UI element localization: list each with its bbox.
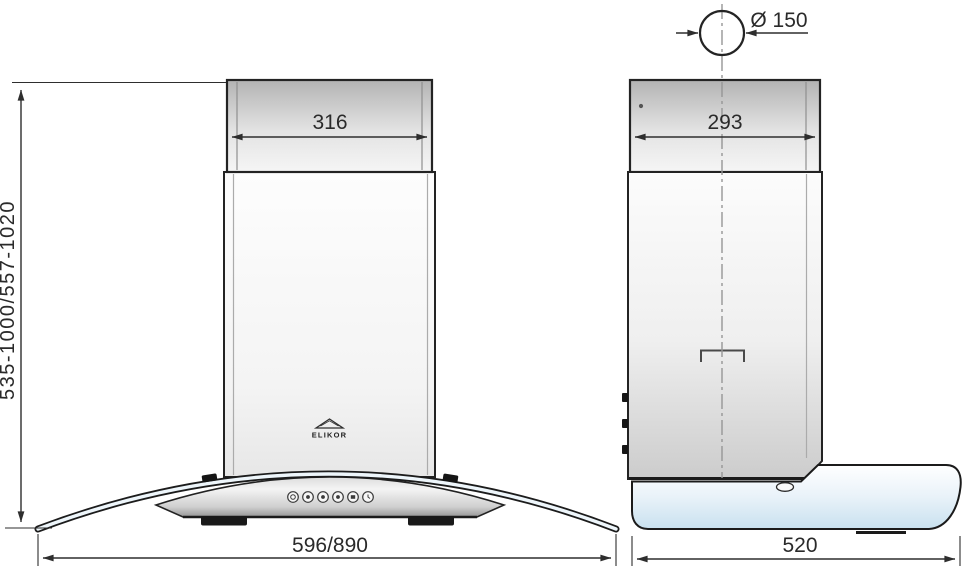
- rear-tab-2: [622, 419, 628, 428]
- front-view: ELIKOR: [0, 80, 616, 566]
- dimension-body-width: 596/890: [38, 534, 616, 566]
- dimension-value-316: 316: [312, 111, 347, 134]
- dimension-value-height: 535-1000/557-1020: [0, 200, 19, 400]
- dimension-duct-diameter: Ø 150: [676, 9, 808, 33]
- dimension-value-520: 520: [782, 534, 817, 557]
- side-view: Ø 150 293 520: [622, 4, 961, 566]
- vent-oval: [777, 483, 794, 492]
- control-button-power: [288, 492, 299, 503]
- dimension-height-range: 535-1000/557-1020: [0, 83, 226, 529]
- rear-tab-1: [622, 393, 628, 402]
- control-button-speed1-glyph: [306, 495, 310, 499]
- rivet-dot: [639, 104, 643, 108]
- lamp-housing-right: [408, 516, 454, 526]
- dimension-value-duct: Ø 150: [750, 9, 807, 32]
- control-button-light-glyph: [351, 495, 355, 499]
- lamp-housing-left: [201, 516, 247, 526]
- side-body: [628, 172, 822, 479]
- control-button-speed3-glyph: [336, 495, 340, 499]
- technical-drawing-page: ELIKOR: [0, 0, 970, 571]
- dimension-body-depth: 520: [632, 534, 960, 566]
- dimension-value-596-890: 596/890: [292, 534, 368, 557]
- dimension-value-293: 293: [707, 111, 742, 134]
- rear-tab-3: [622, 445, 628, 454]
- control-button-speed2-glyph: [321, 495, 325, 499]
- brand-name: ELIKOR: [312, 431, 348, 440]
- hood-dimension-drawing: ELIKOR: [0, 0, 970, 571]
